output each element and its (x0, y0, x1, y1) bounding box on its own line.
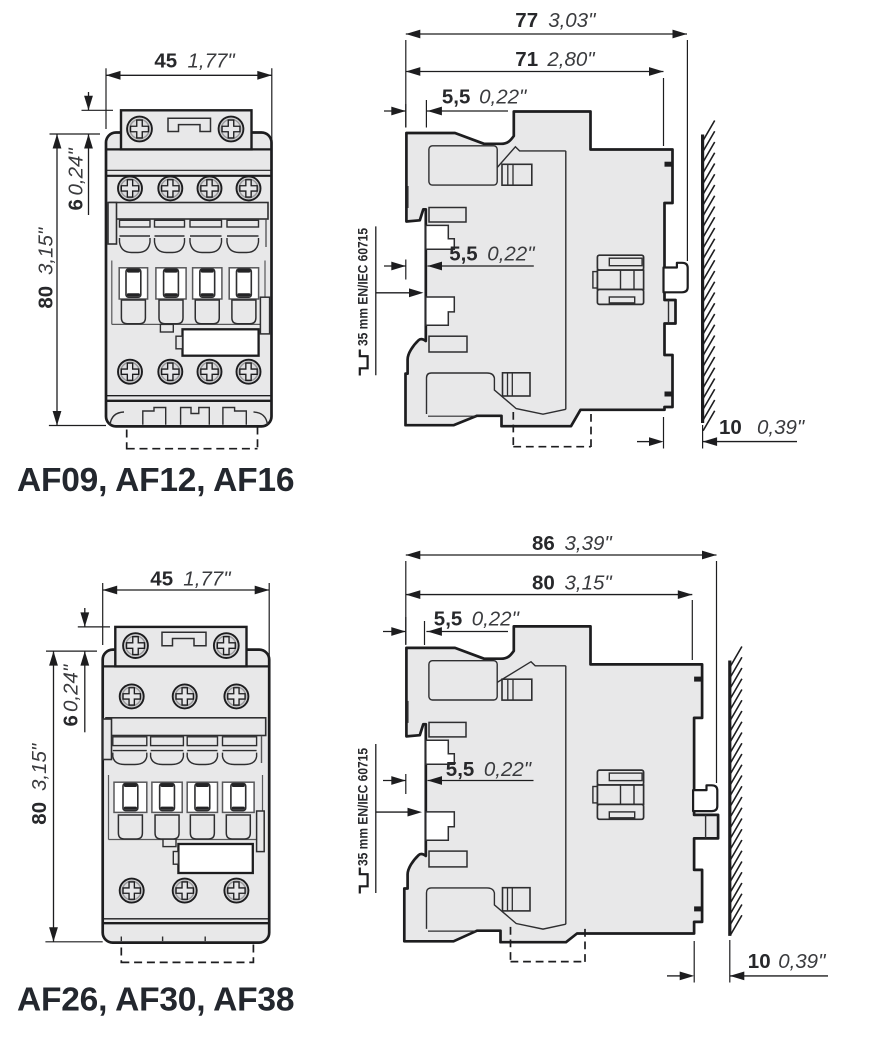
svg-text:2,80": 2,80" (546, 48, 596, 71)
svg-text:1,77": 1,77" (188, 50, 237, 73)
svg-text:86: 86 (532, 532, 555, 555)
svg-text:45: 45 (150, 567, 173, 590)
svg-text:3,15": 3,15" (565, 572, 614, 595)
svg-text:77: 77 (515, 9, 538, 32)
svg-text:5,5: 5,5 (446, 758, 475, 781)
svg-text:1,77": 1,77" (183, 567, 232, 590)
svg-text:5,5: 5,5 (442, 86, 471, 109)
svg-text:0,24": 0,24" (65, 147, 88, 196)
svg-text:AF09, AF12, AF16: AF09, AF12, AF16 (17, 462, 294, 499)
svg-text:3,39": 3,39" (565, 532, 614, 555)
svg-text:71: 71 (515, 48, 538, 71)
svg-text:3,15": 3,15" (28, 742, 51, 791)
svg-text:6: 6 (65, 199, 88, 210)
svg-text:80: 80 (28, 802, 51, 825)
svg-text:3,15": 3,15" (34, 226, 57, 275)
svg-text:0,22": 0,22" (484, 758, 533, 781)
svg-text:10: 10 (719, 416, 742, 439)
svg-text:0,22": 0,22" (479, 86, 528, 109)
svg-text:35 mm EN/IEC 60715: 35 mm EN/IEC 60715 (355, 228, 371, 346)
svg-text:AF26, AF30, AF38: AF26, AF30, AF38 (17, 982, 294, 1019)
svg-text:80: 80 (34, 286, 57, 309)
svg-text:0,39": 0,39" (778, 950, 827, 973)
svg-text:5,5: 5,5 (434, 608, 463, 631)
svg-text:3,03": 3,03" (548, 9, 597, 32)
svg-text:0,39": 0,39" (757, 416, 806, 439)
svg-text:0,22": 0,22" (472, 608, 521, 631)
svg-text:6: 6 (59, 715, 82, 726)
svg-text:0,24": 0,24" (59, 663, 82, 712)
svg-text:0,22": 0,22" (487, 242, 536, 265)
svg-text:80: 80 (532, 572, 555, 595)
svg-text:5,5: 5,5 (449, 242, 478, 265)
svg-text:10: 10 (748, 950, 771, 973)
svg-text:35 mm EN/IEC 60715: 35 mm EN/IEC 60715 (355, 748, 371, 866)
svg-text:45: 45 (154, 50, 177, 73)
